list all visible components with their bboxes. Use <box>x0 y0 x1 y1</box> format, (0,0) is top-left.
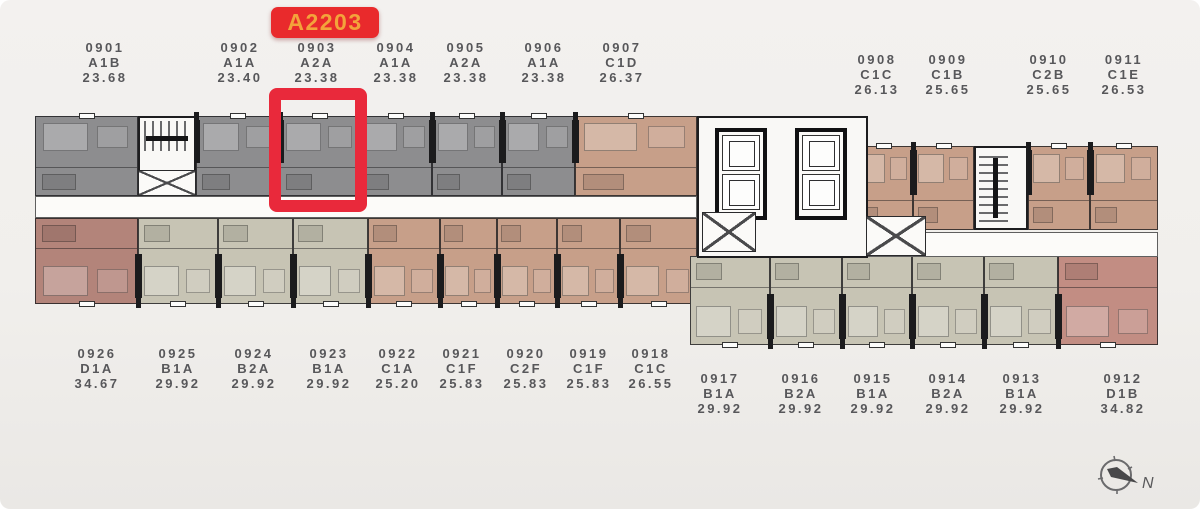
bed-furniture <box>1066 306 1109 337</box>
selected-unit-badge-label: A2203 <box>287 9 362 36</box>
interior-wall <box>219 248 292 249</box>
stairwell-icon <box>974 146 1028 230</box>
structural-column <box>910 150 917 195</box>
structural-column <box>1055 294 1062 339</box>
column-stub <box>136 298 141 308</box>
column-stub <box>555 298 560 308</box>
unit-number: 0918 <box>603 346 699 361</box>
unit-0917[interactable] <box>690 256 770 345</box>
unit-number: 0907 <box>574 40 670 55</box>
unit-0901[interactable] <box>35 116 138 196</box>
structural-column <box>617 254 624 298</box>
balcony-divider <box>869 342 885 348</box>
unit-0913[interactable] <box>984 256 1058 345</box>
unit-number: 0909 <box>900 52 996 67</box>
structural-column <box>909 294 916 339</box>
bed-furniture <box>918 154 944 184</box>
sofa-furniture <box>97 269 128 293</box>
balcony-divider <box>581 301 597 307</box>
bathroom-area <box>1065 263 1098 280</box>
balcony-divider <box>876 143 892 149</box>
bathroom-area <box>501 225 521 242</box>
sofa-furniture <box>1028 309 1050 333</box>
elevator-shaft <box>722 135 760 171</box>
label-unit-0901: 0901A1B23.68 <box>57 40 153 85</box>
bathroom-area <box>202 174 230 190</box>
structural-column <box>290 254 297 298</box>
bed-furniture <box>366 123 397 151</box>
elevator-shaft <box>802 135 840 171</box>
sofa-furniture <box>474 126 495 148</box>
sofa-furniture <box>595 269 614 293</box>
balcony-divider <box>323 301 339 307</box>
structural-column <box>554 254 561 298</box>
balcony-divider <box>519 301 535 307</box>
bed-furniture <box>848 306 878 337</box>
sofa-furniture <box>1065 157 1084 180</box>
unit-0905[interactable] <box>432 116 502 196</box>
bathroom-area <box>42 174 76 190</box>
label-unit-0911: 0911C1E26.53 <box>1076 52 1172 97</box>
balcony-divider <box>798 342 814 348</box>
unit-0914[interactable] <box>912 256 984 345</box>
unit-number: 0912 <box>1075 371 1171 386</box>
interior-wall <box>913 287 983 288</box>
column-stub <box>911 142 916 152</box>
sofa-furniture <box>546 126 568 148</box>
interior-wall <box>771 287 841 288</box>
label-unit-0909: 0909C1B25.65 <box>900 52 996 97</box>
column-stub <box>1056 339 1061 349</box>
sofa-furniture <box>263 269 286 293</box>
bathroom-area <box>444 225 463 242</box>
bathroom-area <box>917 263 941 280</box>
unit-0924[interactable] <box>218 218 293 304</box>
unit-area: 26.37 <box>574 70 670 85</box>
sofa-furniture <box>738 309 762 333</box>
unit-0910[interactable] <box>1028 146 1090 230</box>
sofa-furniture <box>949 157 967 180</box>
unit-0916[interactable] <box>770 256 842 345</box>
column-stub <box>910 339 915 349</box>
bathroom-area <box>223 225 248 242</box>
structural-column <box>429 120 436 163</box>
unit-area: 23.68 <box>57 70 153 85</box>
bed-furniture <box>299 266 331 296</box>
column-stub <box>768 339 773 349</box>
interior-wall <box>1029 200 1089 201</box>
shaft-cross-icon <box>702 212 756 252</box>
selected-unit-badge: A2203 <box>271 7 379 38</box>
structural-column <box>437 254 444 298</box>
elevator-shaft <box>722 174 760 210</box>
bathroom-area <box>1033 207 1053 223</box>
interior-wall <box>843 287 911 288</box>
bathroom-area <box>144 225 171 242</box>
interior-wall <box>558 248 619 249</box>
bed-furniture <box>203 123 239 151</box>
structural-column <box>572 120 579 163</box>
unit-0912[interactable] <box>1058 256 1158 345</box>
bed-furniture <box>144 266 178 296</box>
sofa-furniture <box>648 126 685 148</box>
bed-furniture <box>1096 154 1125 184</box>
unit-0918[interactable] <box>620 218 697 304</box>
label-unit-0907: 0907C1D26.37 <box>574 40 670 85</box>
sofa-furniture <box>186 269 210 293</box>
column-stub <box>1088 142 1093 152</box>
balcony-divider <box>79 301 95 307</box>
sofa-furniture <box>955 309 977 333</box>
bed-furniture <box>224 266 256 296</box>
column-stub <box>291 298 296 308</box>
interior-wall <box>1091 200 1157 201</box>
sofa-furniture <box>474 269 491 293</box>
unit-0902[interactable] <box>196 116 280 196</box>
interior-wall <box>985 287 1057 288</box>
bed-furniture <box>43 123 87 151</box>
column-stub <box>982 339 987 349</box>
bathroom-area <box>437 174 460 190</box>
interior-wall <box>294 248 367 249</box>
stair-landing <box>993 158 998 219</box>
sofa-furniture <box>246 126 271 148</box>
unit-type: B1A <box>974 386 1070 401</box>
balcony-divider <box>388 113 404 119</box>
shaft-cross-icon <box>866 216 926 256</box>
bathroom-area <box>365 174 389 190</box>
elevator-bank <box>795 128 847 220</box>
bathroom-area <box>42 225 76 242</box>
balcony-divider <box>396 301 412 307</box>
column-stub <box>216 298 221 308</box>
sofa-furniture <box>338 269 361 293</box>
stairwell-icon <box>138 116 196 172</box>
balcony-divider <box>461 301 477 307</box>
structural-column <box>499 120 506 163</box>
balcony-divider <box>1116 143 1132 149</box>
bed-furniture <box>626 266 659 296</box>
interior-wall <box>197 167 279 168</box>
unit-0923[interactable] <box>293 218 368 304</box>
balcony-divider <box>79 113 95 119</box>
balcony-divider <box>1100 342 1116 348</box>
unit-0904[interactable] <box>360 116 432 196</box>
column-stub <box>618 298 623 308</box>
bed-furniture <box>584 123 637 151</box>
balcony-divider <box>170 301 186 307</box>
interior-wall <box>621 248 696 249</box>
bed-furniture <box>776 306 807 337</box>
column-stub <box>430 112 435 122</box>
balcony-divider <box>722 342 738 348</box>
unit-0921[interactable] <box>440 218 497 304</box>
balcony-divider <box>1013 342 1029 348</box>
column-stub <box>840 339 845 349</box>
bathroom-area <box>626 225 652 242</box>
sofa-furniture <box>890 157 907 180</box>
sofa-furniture <box>1118 309 1148 333</box>
structural-column <box>135 254 142 298</box>
sofa-furniture <box>813 309 835 333</box>
bathroom-area <box>775 263 799 280</box>
interior-wall <box>36 248 137 249</box>
unit-number: 0913 <box>974 371 1070 386</box>
bed-furniture <box>1033 154 1059 184</box>
structural-column <box>365 254 372 298</box>
sofa-furniture <box>1131 157 1151 180</box>
column-stub <box>495 298 500 308</box>
unit-number: 0911 <box>1076 52 1172 67</box>
interior-wall <box>576 167 696 168</box>
unit-0906[interactable] <box>502 116 575 196</box>
bathroom-area <box>1095 207 1117 223</box>
unit-type: A1B <box>57 55 153 70</box>
interior-wall <box>691 287 769 288</box>
unit-type: C1E <box>1076 67 1172 82</box>
stair-landing <box>146 136 187 141</box>
bathroom-area <box>583 174 624 190</box>
balcony-divider <box>1051 143 1067 149</box>
unit-type: C1B <box>900 67 996 82</box>
compass-north-label: N <box>1142 475 1154 492</box>
elevator-bank <box>715 128 767 220</box>
interior-wall <box>1059 287 1157 288</box>
unit-number: 0901 <box>57 40 153 55</box>
balcony-divider <box>248 301 264 307</box>
unit-type: C1D <box>574 55 670 70</box>
bathroom-area <box>373 225 397 242</box>
interior-wall <box>139 248 217 249</box>
balcony-divider <box>628 113 644 119</box>
bathroom-area <box>989 263 1013 280</box>
column-stub <box>438 298 443 308</box>
balcony-divider <box>531 113 547 119</box>
label-unit-0912: 0912D1B34.82 <box>1075 371 1171 416</box>
unit-0911[interactable] <box>1090 146 1158 230</box>
bathroom-area <box>562 225 583 242</box>
bed-furniture <box>562 266 589 296</box>
floorplan-viewer: 0901A1B23.680902A1A23.400903A2A23.380904… <box>0 0 1200 509</box>
column-stub <box>573 112 578 122</box>
sofa-furniture <box>884 309 905 333</box>
unit-0926[interactable] <box>35 218 138 304</box>
bathroom-area <box>507 174 531 190</box>
unit-area: 29.92 <box>974 401 1070 416</box>
bed-furniture <box>502 266 528 296</box>
bed-furniture <box>696 306 730 337</box>
structural-column <box>981 294 988 339</box>
unit-0919[interactable] <box>557 218 620 304</box>
sofa-furniture <box>666 269 689 293</box>
bed-furniture <box>43 266 87 296</box>
balcony-divider <box>940 342 956 348</box>
interior-wall <box>433 167 501 168</box>
unit-type: D1B <box>1075 386 1171 401</box>
balcony-divider <box>459 113 475 119</box>
unit-0925[interactable] <box>138 218 218 304</box>
sofa-furniture <box>411 269 433 293</box>
bed-furniture <box>508 123 539 151</box>
interior-wall <box>914 200 973 201</box>
interior-wall <box>498 248 556 249</box>
structural-column <box>215 254 222 298</box>
column-stub <box>500 112 505 122</box>
column-stub <box>366 298 371 308</box>
compass-needle <box>1107 467 1138 483</box>
interior-wall <box>361 167 431 168</box>
sofa-furniture <box>533 269 551 293</box>
elevator-car <box>809 180 834 206</box>
unit-area: 34.82 <box>1075 401 1171 416</box>
label-unit-0913: 0913B1A29.92 <box>974 371 1070 416</box>
bed-furniture <box>918 306 949 337</box>
unit-0907[interactable] <box>575 116 697 196</box>
bed-furniture <box>374 266 405 296</box>
bathroom-area <box>298 225 323 242</box>
structural-column <box>494 254 501 298</box>
unit-0920[interactable] <box>497 218 557 304</box>
unit-0915[interactable] <box>842 256 912 345</box>
sofa-furniture <box>97 126 128 148</box>
balcony-divider <box>651 301 667 307</box>
bed-furniture <box>445 266 469 296</box>
balcony-divider <box>230 113 246 119</box>
unit-area: 26.53 <box>1076 82 1172 97</box>
unit-area: 25.65 <box>900 82 996 97</box>
structural-column <box>767 294 774 339</box>
interior-wall <box>503 167 574 168</box>
interior-wall <box>36 167 137 168</box>
shaft-cross-icon <box>138 170 196 196</box>
bathroom-area <box>696 263 723 280</box>
selected-unit-highlight-box <box>269 88 367 212</box>
compass-icon: N <box>1094 453 1164 501</box>
structural-column <box>839 294 846 339</box>
structural-column <box>1087 150 1094 195</box>
interior-wall <box>369 248 439 249</box>
bathroom-area <box>847 263 870 280</box>
elevator-car <box>729 141 754 167</box>
bed-furniture <box>990 306 1022 337</box>
bed-furniture <box>438 123 468 151</box>
interior-wall <box>441 248 496 249</box>
sofa-furniture <box>403 126 425 148</box>
elevator-shaft <box>802 174 840 210</box>
elevator-car <box>729 180 754 206</box>
unit-0922[interactable] <box>368 218 440 304</box>
balcony-divider <box>936 143 952 149</box>
elevator-car <box>809 141 834 167</box>
